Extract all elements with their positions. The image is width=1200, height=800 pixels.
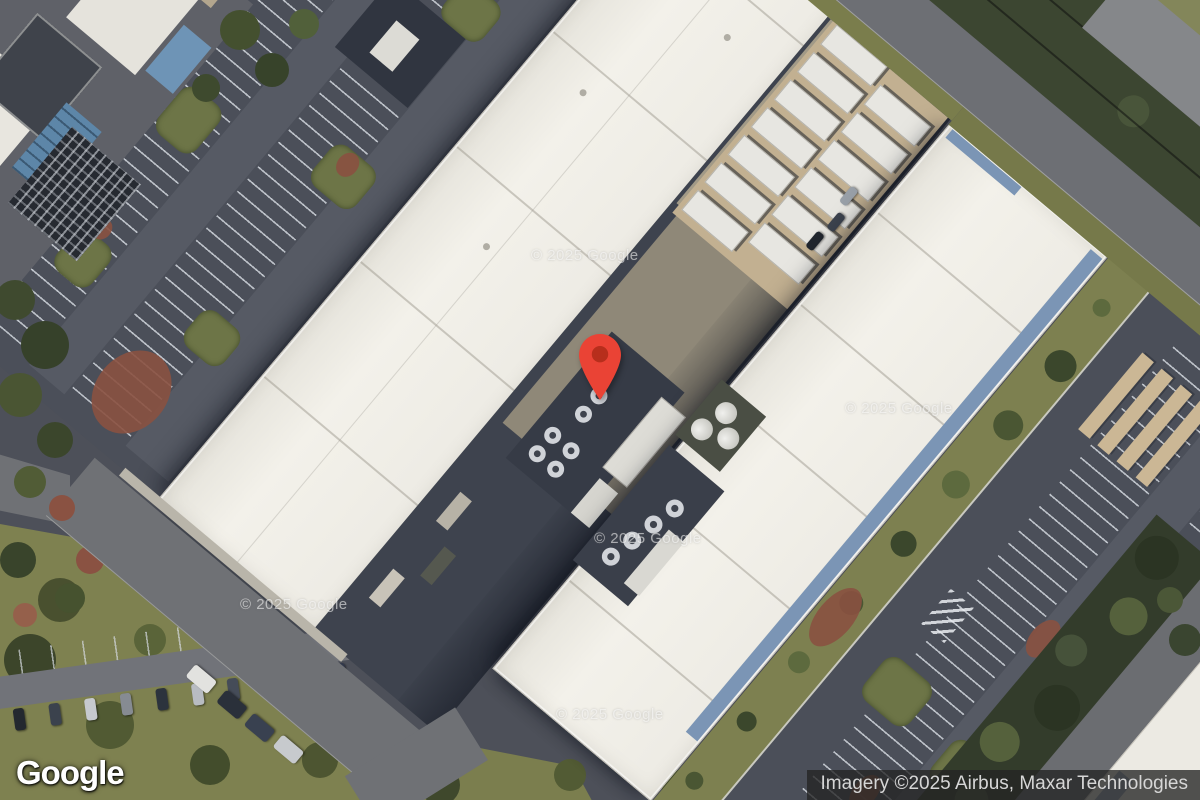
roof-seam xyxy=(569,580,724,711)
google-logo[interactable]: Google xyxy=(16,754,124,792)
pin-body xyxy=(579,334,621,400)
map-pin[interactable] xyxy=(576,333,624,406)
roof-vent xyxy=(722,33,732,43)
roof-seam xyxy=(360,261,515,392)
google-watermark: © 2025 Google xyxy=(594,530,702,547)
roof-vent xyxy=(482,242,492,252)
google-watermark: © 2025 Google xyxy=(556,706,664,723)
satellite-map[interactable]: © 2025 Google © 2025 Google © 2025 Googl… xyxy=(0,0,1200,800)
parked-car xyxy=(273,734,305,764)
roof-vent xyxy=(578,88,588,98)
google-watermark: © 2025 Google xyxy=(531,247,639,264)
roof-seam xyxy=(553,31,708,162)
roof-seam xyxy=(264,376,419,507)
parked-car xyxy=(186,664,218,694)
attribution-text: Imagery ©2025 Airbus, Maxar Technologies xyxy=(807,770,1200,800)
pin-hole xyxy=(592,346,608,362)
map-pin-icon xyxy=(576,333,624,401)
parked-car xyxy=(244,713,276,743)
google-watermark: © 2025 Google xyxy=(240,596,348,613)
google-watermark: © 2025 Google xyxy=(845,400,953,417)
parked-car xyxy=(216,690,248,720)
roof-seam xyxy=(878,212,1033,343)
